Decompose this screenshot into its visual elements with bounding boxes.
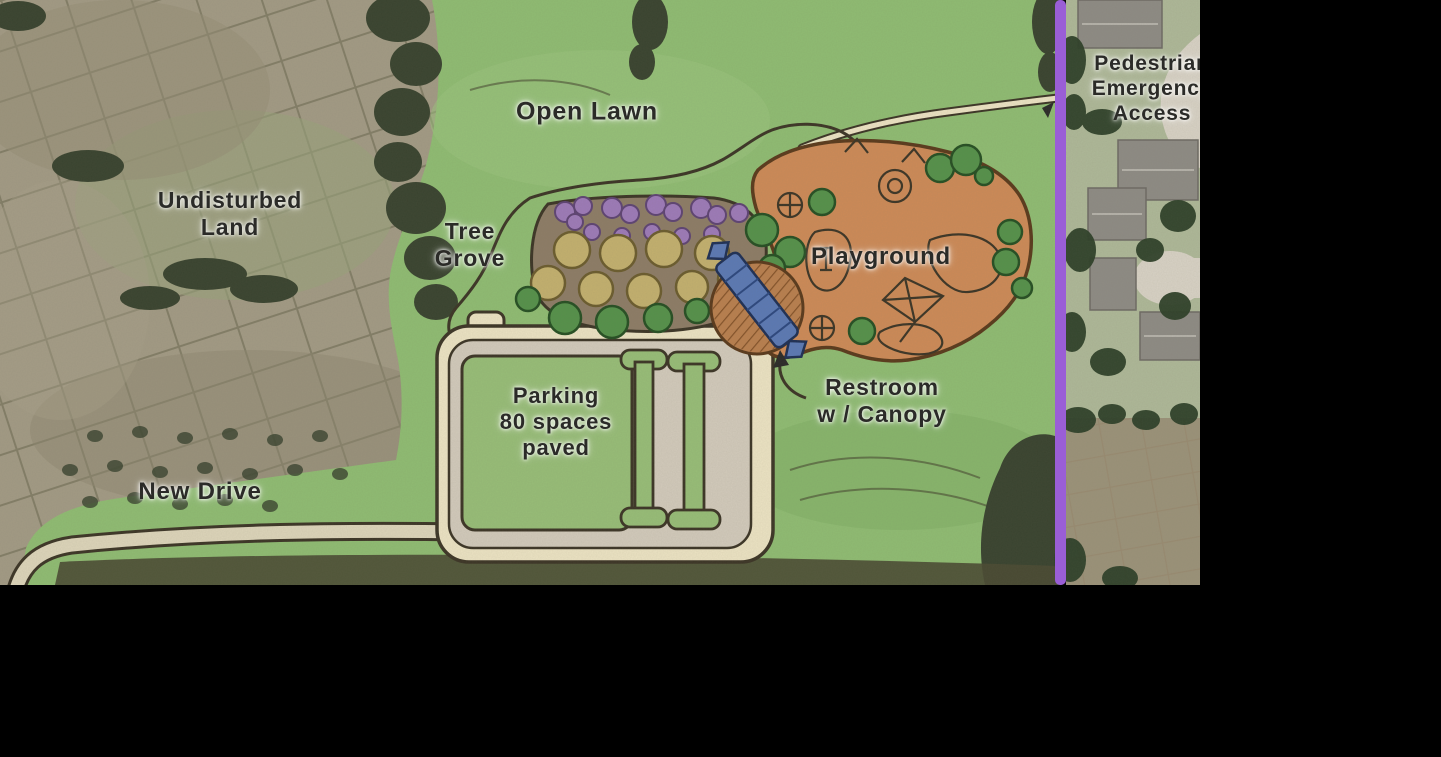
- label-restroom: Restroom w / Canopy: [817, 374, 946, 428]
- label-open-lawn: Open Lawn: [516, 97, 658, 127]
- label-parking: Parking 80 spaces paved: [500, 383, 612, 461]
- label-undisturbed-land: Undisturbed Land: [158, 187, 302, 241]
- label-pedestrian-access: Pedestrian Emergency Access: [1076, 52, 1200, 126]
- label-playground: Playground: [811, 243, 951, 271]
- label-new-drive: New Drive: [138, 478, 261, 506]
- property-boundary-line: [1055, 0, 1066, 585]
- video-frame: Open Lawn Undisturbed Land Tree Grove Pl…: [0, 0, 1441, 757]
- site-plan-map: Open Lawn Undisturbed Land Tree Grove Pl…: [0, 0, 1200, 585]
- label-tree-grove: Tree Grove: [435, 218, 505, 272]
